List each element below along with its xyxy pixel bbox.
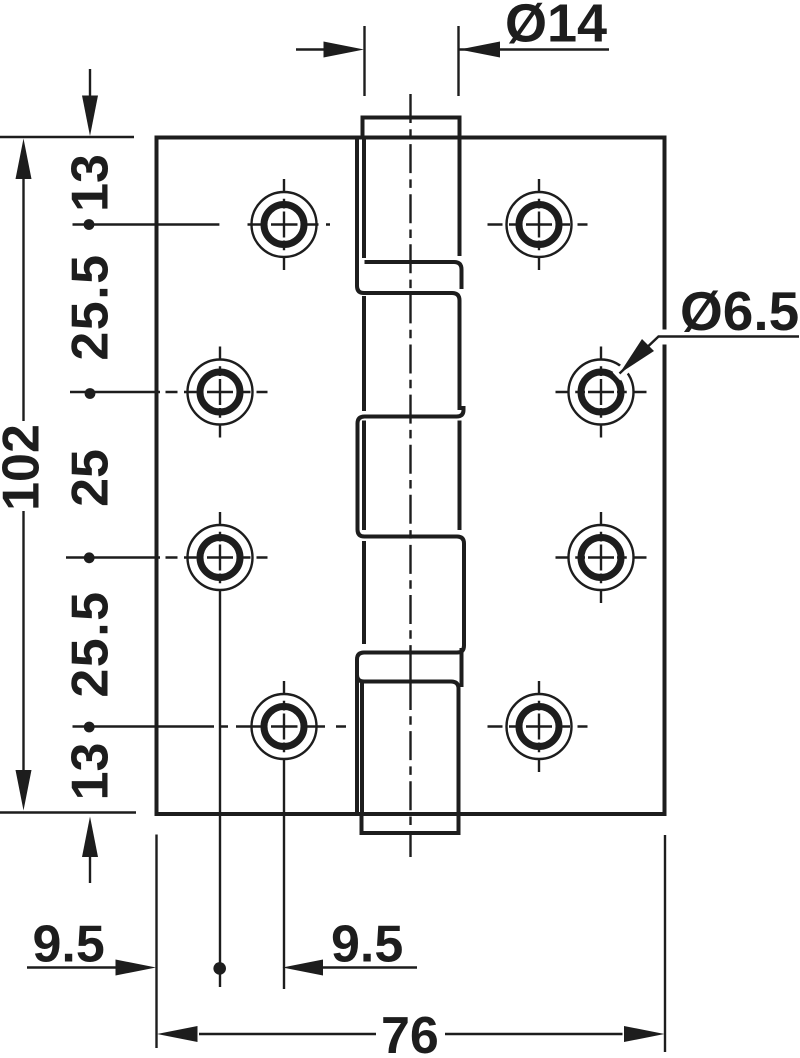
svg-text:25.5: 25.5 bbox=[62, 253, 120, 360]
svg-text:Ø14: Ø14 bbox=[505, 0, 607, 54]
svg-text:13: 13 bbox=[62, 743, 120, 801]
svg-text:9.5: 9.5 bbox=[33, 916, 105, 974]
svg-text:25.5: 25.5 bbox=[62, 590, 120, 697]
svg-text:9.5: 9.5 bbox=[331, 916, 403, 974]
svg-text:25: 25 bbox=[62, 449, 120, 507]
svg-text:76: 76 bbox=[381, 1007, 439, 1058]
svg-text:13: 13 bbox=[62, 154, 120, 212]
svg-text:102: 102 bbox=[0, 424, 51, 511]
svg-text:Ø6.5: Ø6.5 bbox=[680, 280, 799, 342]
